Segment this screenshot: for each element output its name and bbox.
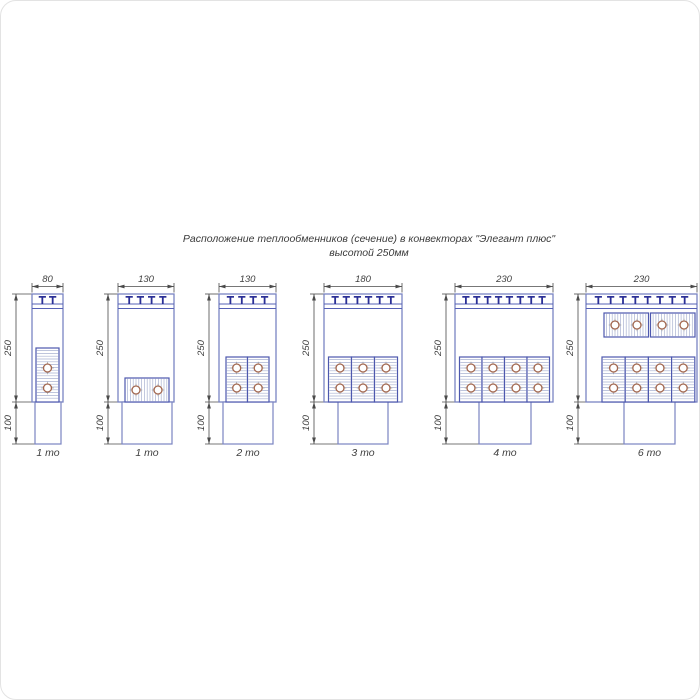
grille-tee-icon [252, 296, 254, 304]
width-dimension-label: 230 [633, 274, 651, 285]
heat-exchanger-block [36, 348, 59, 402]
dimension-arrow [324, 285, 331, 289]
tube-circle [656, 384, 664, 392]
grille-tee-icon [622, 296, 624, 304]
dimension-arrow [312, 396, 316, 403]
heat-exchanger-block [329, 357, 352, 402]
tube-circle [254, 364, 262, 372]
tube-circle [680, 321, 688, 329]
diagram-caption: 1 то [36, 447, 59, 459]
dimension-arrow [207, 396, 211, 403]
dimension-arrow [576, 402, 580, 409]
lower-duct-box [122, 402, 172, 444]
dimension-arrow [270, 285, 277, 289]
tube-circle [254, 384, 262, 392]
lower-duct-box [338, 402, 388, 444]
base-dimension-label: 100 [433, 414, 444, 431]
tube-circle [467, 364, 475, 372]
tube-circle [512, 364, 520, 372]
tube-circle [679, 364, 687, 372]
grille-tee-icon [379, 296, 381, 304]
dimension-arrow [106, 438, 110, 445]
width-dimension-label: 180 [355, 274, 372, 285]
grille-tee-icon [541, 296, 543, 304]
grille-tee-icon [597, 296, 599, 304]
base-dimension-label: 100 [565, 414, 576, 431]
dimension-arrow [168, 285, 175, 289]
tube-circle [679, 384, 687, 392]
dimension-arrow [207, 294, 211, 301]
height-dimension-label: 250 [95, 339, 106, 357]
convector-diagram-6: 2302501006 то [565, 274, 697, 459]
dimension-arrow [455, 285, 462, 289]
convector-diagrams: 802501001 то1302501001 то1302501002 то18… [3, 274, 697, 459]
convector-diagram-4: 1802501003 то [301, 274, 402, 459]
grille-tee-icon [264, 296, 266, 304]
heat-exchanger-block [505, 357, 528, 402]
base-dimension-label: 100 [3, 414, 14, 431]
lower-duct-box [35, 402, 61, 444]
tube-circle [233, 384, 241, 392]
diagram-caption: 1 то [135, 447, 158, 459]
dimension-arrow [32, 285, 39, 289]
dimension-arrow [444, 396, 448, 403]
drawing-title-line2: высотой 250мм [329, 247, 408, 259]
dimension-arrow [14, 294, 18, 301]
dimension-arrow [207, 402, 211, 409]
convector-diagram-2: 1302501001 то [95, 274, 174, 459]
dimension-arrow [586, 285, 593, 289]
dimension-arrow [547, 285, 554, 289]
dimension-arrow [106, 294, 110, 301]
base-dimension-label: 100 [301, 414, 312, 431]
grille-tee-icon [671, 296, 673, 304]
grille-tee-icon [41, 296, 43, 304]
grille-tee-icon [659, 296, 661, 304]
heat-exchanger-block [482, 357, 505, 402]
heat-exchanger-block [648, 357, 671, 402]
tube-circle [611, 321, 619, 329]
heat-exchanger-block [460, 357, 483, 402]
heat-exchanger-block [352, 357, 375, 402]
page: Расположение теплообменников (сечение) в… [0, 0, 700, 700]
grille-tee-icon [151, 296, 153, 304]
dimension-arrow [106, 396, 110, 403]
heat-exchanger-block [248, 357, 270, 402]
heat-exchanger-block [226, 357, 248, 402]
grille-tee-icon [241, 296, 243, 304]
dimension-arrow [444, 438, 448, 445]
grille-tee-icon [498, 296, 500, 304]
dimension-arrow [444, 402, 448, 409]
width-dimension-label: 230 [495, 274, 513, 285]
tube-circle [44, 384, 52, 392]
dimension-arrow [396, 285, 403, 289]
grille-tee-icon [530, 296, 532, 304]
tube-circle [489, 364, 497, 372]
grille-tee-icon [509, 296, 511, 304]
dimension-arrow [312, 402, 316, 409]
grille-tee-icon [128, 296, 130, 304]
grille-tee-icon [487, 296, 489, 304]
height-dimension-label: 250 [196, 339, 207, 357]
grille-tee-icon [684, 296, 686, 304]
tube-circle [489, 384, 497, 392]
tube-circle [534, 364, 542, 372]
grille-tee-icon [52, 296, 54, 304]
tube-circle [610, 384, 618, 392]
base-dimension-label: 100 [95, 414, 106, 431]
dimension-arrow [444, 294, 448, 301]
grille-tee-icon [465, 296, 467, 304]
tube-circle [154, 386, 162, 394]
base-dimension-label: 100 [196, 414, 207, 431]
grille-tee-icon [519, 296, 521, 304]
tube-circle [359, 384, 367, 392]
width-dimension-label: 130 [240, 274, 257, 285]
tube-circle [633, 364, 641, 372]
dimension-arrow [219, 285, 226, 289]
tube-circle [132, 386, 140, 394]
tube-circle [382, 384, 390, 392]
dimension-arrow [691, 285, 698, 289]
grille-tee-icon [634, 296, 636, 304]
dimension-arrow [14, 438, 18, 445]
tube-circle [382, 364, 390, 372]
grille-tee-icon [334, 296, 336, 304]
tube-circle [610, 364, 618, 372]
height-dimension-label: 250 [301, 339, 312, 357]
dimension-arrow [576, 438, 580, 445]
grille-tee-icon [230, 296, 232, 304]
grille-tee-icon [345, 296, 347, 304]
height-dimension-label: 250 [3, 339, 14, 357]
diagram-caption: 2 то [235, 447, 259, 459]
height-dimension-label: 250 [565, 339, 576, 357]
tube-circle [336, 384, 344, 392]
dimension-arrow [57, 285, 64, 289]
lower-duct-box [479, 402, 531, 444]
grille-tee-icon [610, 296, 612, 304]
dimension-arrow [312, 438, 316, 445]
tube-circle [633, 384, 641, 392]
width-dimension-label: 80 [42, 274, 53, 285]
heat-exchanger-block [651, 313, 696, 337]
lower-duct-box [223, 402, 273, 444]
grille-tee-icon [476, 296, 478, 304]
dimension-arrow [576, 294, 580, 301]
dimension-arrow [14, 396, 18, 403]
convector-diagram-5: 2302501004 то [433, 274, 553, 459]
dimension-arrow [106, 402, 110, 409]
diagram-caption: 3 то [351, 447, 374, 459]
heat-exchanger-block [527, 357, 550, 402]
heat-exchanger-block [604, 313, 649, 337]
diagram-caption: 4 то [493, 447, 516, 459]
tube-circle [336, 364, 344, 372]
tube-circle [534, 384, 542, 392]
tube-circle [467, 384, 475, 392]
height-dimension-label: 250 [433, 339, 444, 357]
heat-exchanger-block [375, 357, 398, 402]
heat-exchanger-block [625, 357, 648, 402]
convector-diagram-1: 802501001 то [3, 274, 63, 459]
dimension-arrow [207, 438, 211, 445]
tube-circle [658, 321, 666, 329]
grille-tee-icon [140, 296, 142, 304]
grille-tee-icon [390, 296, 392, 304]
tube-circle [233, 364, 241, 372]
grille-tee-icon [357, 296, 359, 304]
width-dimension-label: 130 [138, 274, 155, 285]
dimension-arrow [312, 294, 316, 301]
tube-circle [359, 364, 367, 372]
drawing-title-line1: Расположение теплообменников (сечение) в… [183, 233, 557, 245]
heat-exchanger-block [125, 378, 169, 402]
diagram-caption: 6 то [638, 447, 661, 459]
tube-circle [633, 321, 641, 329]
grille-tee-icon [368, 296, 370, 304]
heat-exchanger-block [602, 357, 625, 402]
dimension-arrow [118, 285, 125, 289]
heat-exchanger-block [672, 357, 695, 402]
grille-tee-icon [647, 296, 649, 304]
tube-circle [656, 364, 664, 372]
dimension-arrow [14, 402, 18, 409]
dimension-arrow [576, 396, 580, 403]
grille-tee-icon [162, 296, 164, 304]
tube-circle [512, 384, 520, 392]
technical-drawing: Расположение теплообменников (сечение) в… [1, 1, 700, 700]
tube-circle [44, 364, 52, 372]
convector-diagram-3: 1302501002 то [196, 274, 276, 459]
lower-duct-box [624, 402, 675, 444]
